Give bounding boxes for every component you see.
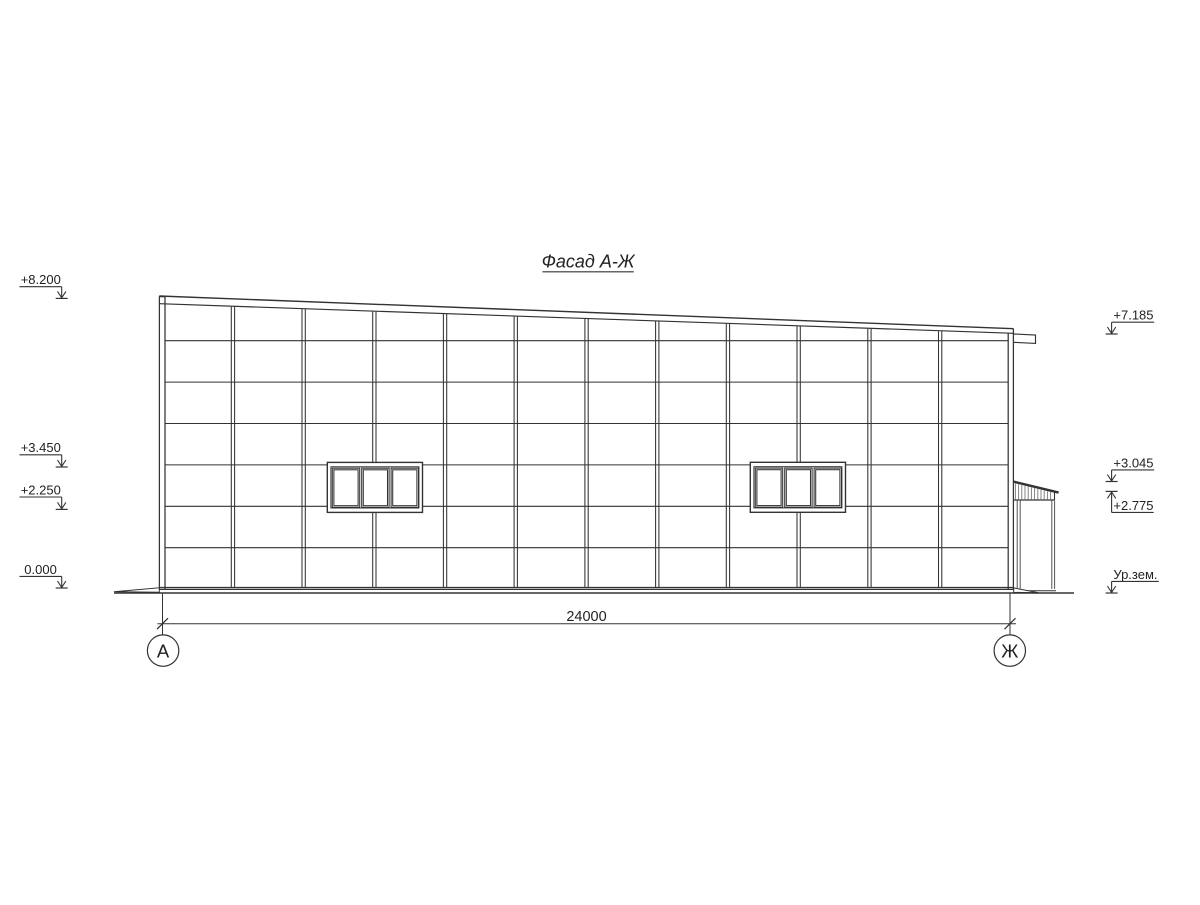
svg-text:+2.775: +2.775 xyxy=(1113,498,1153,513)
svg-text:А: А xyxy=(157,640,170,661)
svg-text:+3.450: +3.450 xyxy=(21,440,61,455)
svg-text:+2.250: +2.250 xyxy=(21,482,61,497)
svg-text:+8.200: +8.200 xyxy=(21,272,61,287)
svg-text:+7.185: +7.185 xyxy=(1113,308,1153,323)
svg-text:+3.045: +3.045 xyxy=(1113,455,1153,470)
svg-text:Фасад А-Ж: Фасад А-Ж xyxy=(542,252,636,272)
svg-text:24000: 24000 xyxy=(566,609,606,625)
svg-text:Ур.зем.: Ур.зем. xyxy=(1113,567,1157,582)
svg-text:Ж: Ж xyxy=(1001,640,1018,661)
svg-text:0.000: 0.000 xyxy=(21,562,57,577)
